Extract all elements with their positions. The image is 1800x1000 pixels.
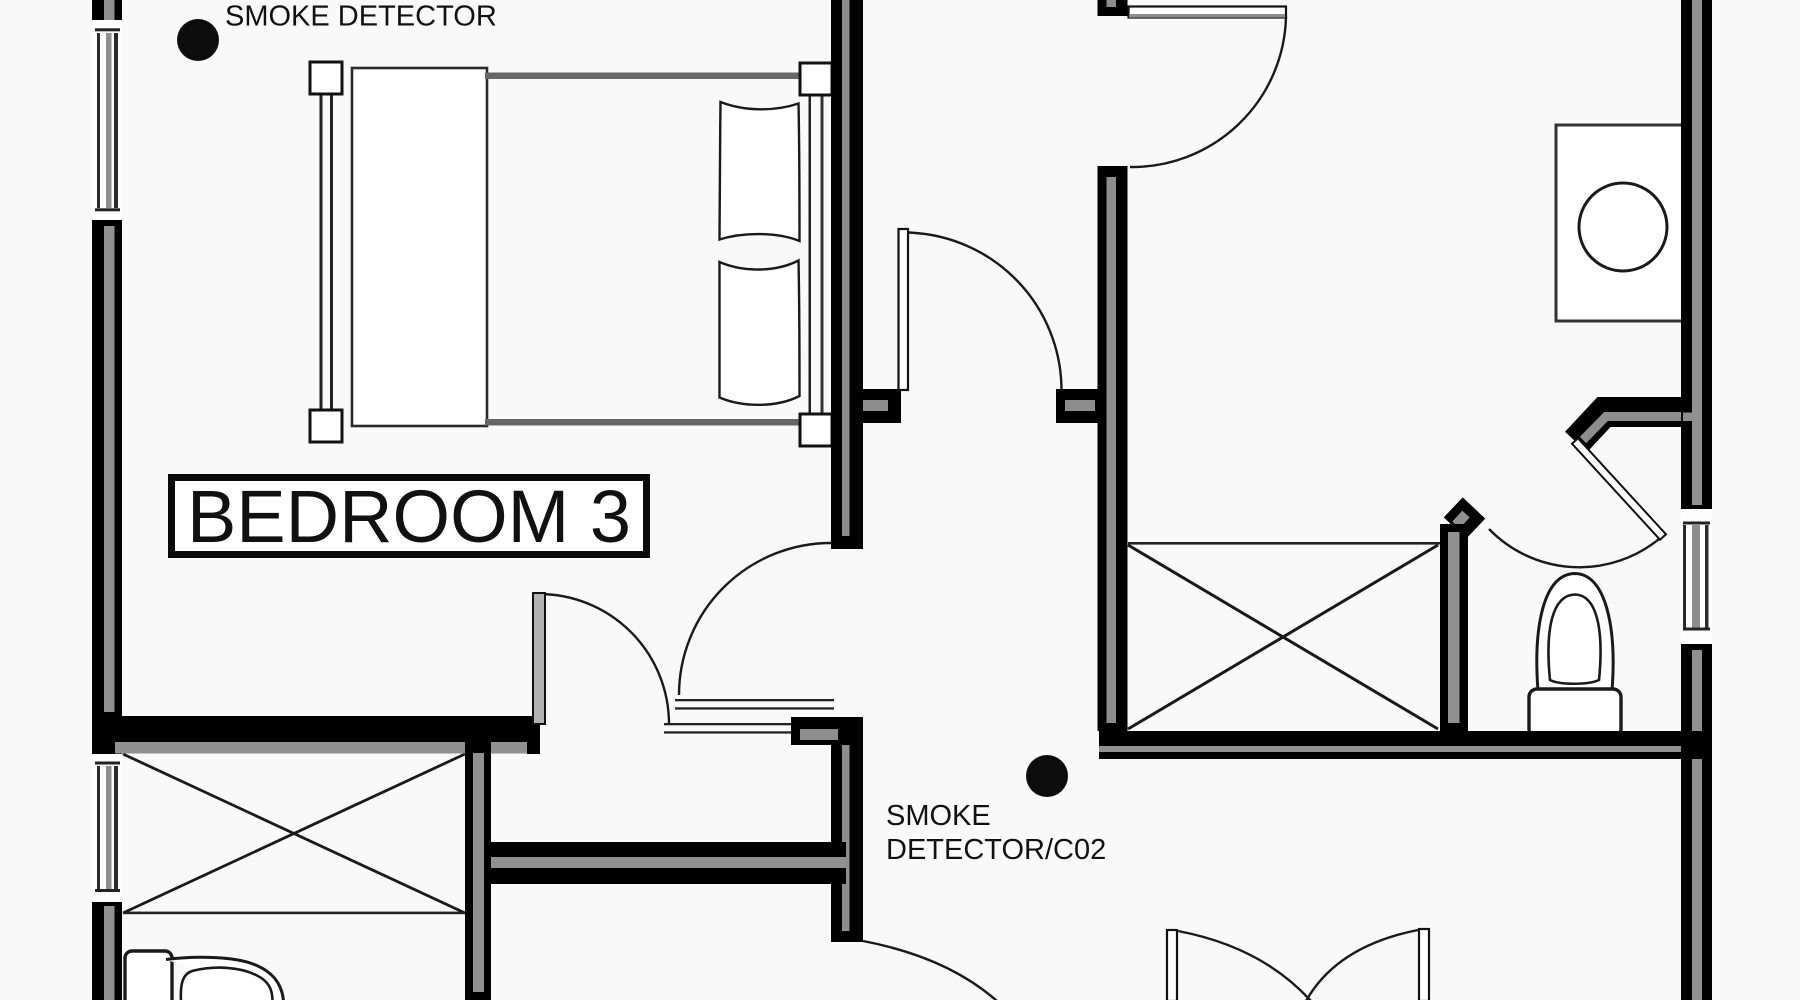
- svg-text:SMOKE: SMOKE: [886, 800, 991, 832]
- svg-text:DETECTOR/C02: DETECTOR/C02: [886, 834, 1106, 866]
- svg-text:SMOKE DETECTOR: SMOKE DETECTOR: [225, 1, 497, 33]
- svg-text:BEDROOM 3: BEDROOM 3: [187, 475, 631, 558]
